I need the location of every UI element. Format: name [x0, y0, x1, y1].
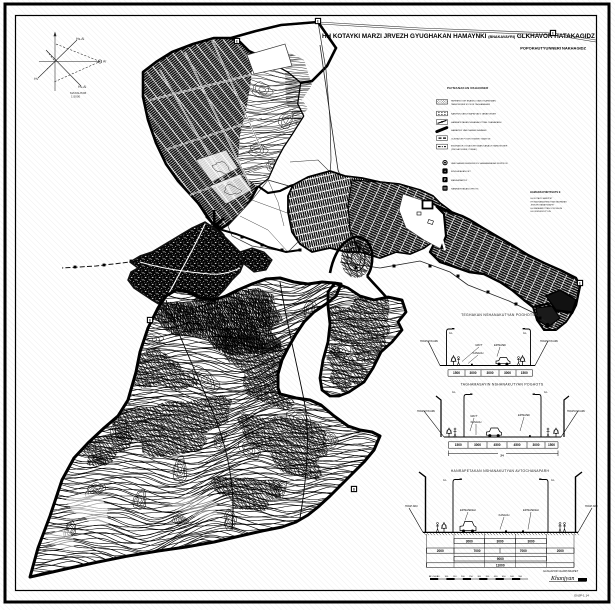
svg-text:1500: 1500	[548, 443, 555, 447]
svg-text:HOGHAYIN ARU: HOGHAYIN ARU	[420, 340, 438, 343]
svg-text:GNJP-1 14: GNJP-1 14	[574, 594, 589, 598]
svg-text:9000: 9000	[497, 557, 504, 561]
svg-text:Khanjyan: Khanjyan	[550, 576, 574, 582]
svg-text:JRVEZHI HAMAYNKAPET: JRVEZHI HAMAYNKAPET	[531, 204, 556, 207]
svg-text:VARCHAKAN SHENKER EV HASARAKAK: VARCHAKAN SHENKER EV HASARAKAKAN KENTRON	[451, 162, 508, 165]
svg-text:TAGHAMASAYIN NSHANAKUTYAN POGH: TAGHAMASAYIN NSHANAKUTYAN POGHOTS	[461, 383, 544, 387]
svg-text:KANACH: KANACH	[471, 420, 482, 424]
svg-text:HANRAPETAKAN NSHANAKUTYAN AVTO: HANRAPETAKAN NSHANAKUTYAN AVTOCHANAPARH	[451, 469, 550, 473]
svg-text:3000: 3000	[504, 371, 511, 375]
svg-text:M: M	[444, 187, 447, 191]
svg-text:7000: 7000	[520, 549, 527, 553]
svg-text:HOGHAYIN ARU: HOGHAYIN ARU	[417, 410, 435, 413]
svg-text:HH KARAVARUTYAN VOROSHUM: HH KARAVARUTYAN VOROSHUM	[531, 207, 563, 210]
svg-text:HH KAGHAKASHINUTYAN NAKHARAR: HH KAGHAKASHINUTYAN NAKHARAR	[531, 200, 568, 203]
svg-text:BZHSHKAKAN KET: BZHSHKAKAN KET	[451, 170, 471, 173]
svg-text:3000: 3000	[469, 371, 476, 375]
svg-text:+: +	[444, 169, 446, 173]
svg-text:3000: 3000	[466, 539, 473, 543]
svg-text:3000: 3000	[527, 539, 534, 543]
svg-text:PAHPANVOGH BNAKELI KARUTSAPATM: PAHPANVOGH BNAKELI KARUTSAPATMAN	[451, 100, 496, 103]
svg-text:POPOKHUTYUNNERI NAKHAGIDZ: POPOKHUTYUNNERI NAKHAGIDZ	[520, 46, 586, 51]
svg-text:PAYMANAKAN NSHANNER: PAYMANAKAN NSHANNER	[447, 86, 489, 90]
svg-text:3000: 3000	[532, 443, 539, 447]
svg-text:ERTEVEKELI: ERTEVEKELI	[460, 508, 476, 512]
svg-text:HH KOTAYKI MARZPET: HH KOTAYKI MARZPET	[531, 197, 554, 200]
svg-text:ERTEVEK: ERTEVEK	[494, 343, 506, 347]
svg-text:24: 24	[500, 453, 504, 457]
svg-text:TEGHAKAN NSHANAKUTYAN POGHOTS: TEGHAKAN NSHANAKUTYAN POGHOTS	[461, 313, 535, 317]
svg-text:M 1:5000: M 1:5000	[429, 576, 439, 578]
svg-text:ERTEVEKELI: ERTEVEKELI	[523, 508, 539, 512]
svg-text:HOGHAYIN ARU: HOGHAYIN ARU	[540, 340, 558, 343]
svg-text:HAMAYNKI VARCHAKAN SAHMAN: HAMAYNKI VARCHAKAN SAHMAN	[451, 129, 487, 132]
svg-text:3000: 3000	[486, 371, 493, 375]
svg-text:HH ORENSDRUTYUN: HH ORENSDRUTYUN	[531, 211, 552, 213]
svg-text:1500: 1500	[455, 443, 462, 447]
svg-text:MAYT: MAYT	[475, 343, 482, 347]
svg-text:TARATSKNER EV NOR TAGHAMASER: TARATSKNER EV NOR TAGHAMASER	[451, 103, 491, 106]
svg-text:Hv-Al: Hv-Al	[78, 85, 87, 89]
svg-text:KANACH: KANACH	[499, 513, 510, 517]
svg-text:2000: 2000	[437, 549, 444, 553]
svg-text:P: P	[444, 178, 447, 182]
svg-text:7000: 7000	[473, 549, 480, 553]
svg-text:4500: 4500	[493, 443, 500, 447]
svg-text:HOGH ARU: HOGH ARU	[405, 505, 418, 508]
svg-text:1:5000: 1:5000	[71, 94, 81, 98]
svg-text:(ZBOSAYGINER, PURAK): (ZBOSAYGINER, PURAK)	[451, 148, 477, 151]
svg-text:MANKAPARTEZ: MANKAPARTEZ	[451, 179, 468, 182]
svg-text:GLKHAVOR CHARTARAPET: GLKHAVOR CHARTARAPET	[543, 569, 579, 573]
svg-text:3000: 3000	[496, 539, 503, 543]
svg-text:GLKHAVOR POGHOTSNERI TSANTSE: GLKHAVOR POGHOTSNERI TSANTSE	[451, 137, 491, 140]
svg-text:KANACH: KANACH	[473, 351, 484, 355]
svg-text:4500: 4500	[513, 443, 520, 447]
svg-text:1500: 1500	[521, 371, 528, 375]
svg-text:11000: 11000	[496, 563, 505, 567]
svg-text:Hv: Hv	[34, 77, 38, 81]
svg-text:HANRAKRTAKAN DPROTS: HANRAKRTAKAN DPROTS	[451, 187, 479, 190]
svg-text:Hs-Al: Hs-Al	[76, 37, 85, 41]
svg-text:HOGH ARU: HOGH ARU	[585, 505, 598, 508]
svg-text:MAYT: MAYT	[470, 414, 477, 418]
svg-text:ERTEVEK: ERTEVEK	[518, 413, 530, 417]
svg-text:HANRAPETAKAN NSHANAKUTYAN CHAN: HANRAPETAKAN NSHANAKUTYAN CHANAPARH	[451, 121, 502, 124]
svg-text:3000: 3000	[474, 443, 481, 447]
svg-text:NAKHKIN KARUTSAPATVATS TARATSK: NAKHKIN KARUTSAPATVATS TARATSKNER	[451, 113, 496, 116]
svg-text:2000: 2000	[557, 549, 564, 553]
svg-text:HOGHAYIN ARU: HOGHAYIN ARU	[567, 410, 585, 413]
svg-text:1500: 1500	[453, 371, 460, 375]
svg-text:ENDHANUR OGTAGORTSMAN KANACH T: ENDHANUR OGTAGORTSMAN KANACH TARATSKNER	[451, 144, 508, 147]
svg-text:HAMADZAYNETSVATS E: HAMADZAYNETSVATS E	[530, 190, 561, 194]
